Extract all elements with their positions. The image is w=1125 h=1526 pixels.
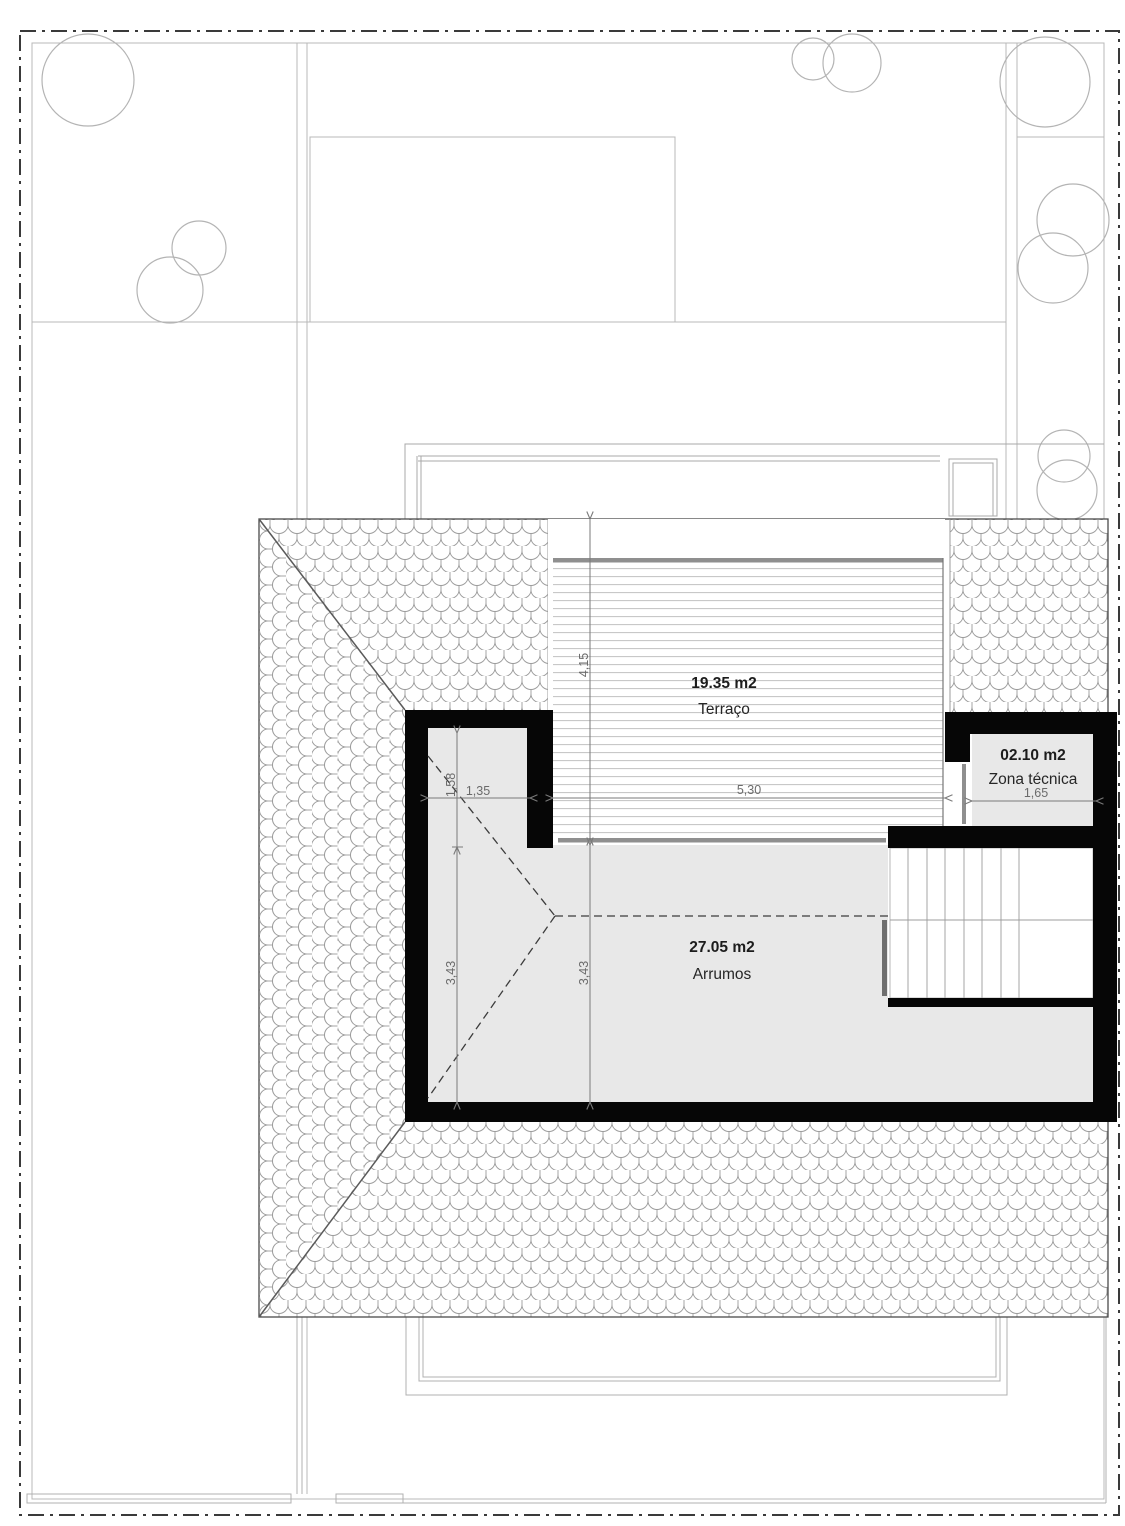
tree-icon — [1018, 233, 1088, 303]
dim-label-storage-depth-mid: 3,43 — [577, 961, 591, 985]
tree-icon — [1037, 460, 1097, 520]
dim-label-terrace-width: 5,30 — [737, 783, 761, 797]
door-leaf — [962, 764, 966, 824]
terrace-railing-top — [553, 558, 943, 563]
room-storage-right — [888, 1007, 1093, 1102]
floor-plan-page: 19.35 m2 Terraço 02.10 m2 Zona técnica 2… — [0, 0, 1125, 1526]
terrace-railing-bottom — [558, 838, 886, 843]
terrace-area-label: 19.35 m2 — [691, 675, 757, 692]
trees — [42, 34, 1109, 520]
roof-hatch-top-right — [950, 519, 1108, 712]
dim-label-technical-width: 1,65 — [1024, 786, 1048, 800]
tree-icon — [42, 34, 134, 126]
wall-right — [1093, 712, 1117, 1122]
wall-top-left — [405, 710, 553, 728]
storage-name-label: Arrumos — [693, 966, 752, 983]
dim-label-storage-upper-depth: 1,58 — [444, 773, 458, 797]
wall-left — [405, 710, 428, 1122]
wall-technical-top — [968, 712, 1117, 734]
wall-bottom — [405, 1102, 1117, 1122]
tree-icon — [1000, 37, 1090, 127]
wall-stairs-bottom — [888, 998, 1093, 1007]
lower-floor-outline-top — [405, 444, 1104, 519]
staircase — [882, 848, 1093, 998]
dim-label-storage-upper-width: 1,35 — [466, 784, 490, 798]
stair-well — [890, 848, 1093, 998]
stair-guard-rail — [882, 920, 887, 996]
tree-icon — [792, 38, 834, 80]
window-outline — [953, 463, 993, 516]
window-outline — [949, 459, 997, 516]
dim-label-storage-depth-left: 3,43 — [444, 961, 458, 985]
tree-icon — [1038, 430, 1090, 482]
tree-icon — [172, 221, 226, 275]
room-storage-main — [428, 845, 888, 1102]
technical-area-label: 02.10 m2 — [1000, 747, 1066, 764]
wall-inner-l — [527, 727, 553, 848]
floor-plan-drawing: 19.35 m2 Terraço 02.10 m2 Zona técnica 2… — [0, 0, 1125, 1526]
tree-icon — [137, 257, 203, 323]
dim-label-terrace-depth: 4,15 — [577, 653, 591, 677]
storage-area-label: 27.05 m2 — [689, 939, 755, 956]
tree-icon — [1037, 184, 1109, 256]
roof-hatch-bottom — [259, 1122, 1108, 1317]
terrace-name-label: Terraço — [698, 701, 750, 718]
wall-stairs-top — [888, 826, 1117, 848]
wall-terrace-divider — [945, 712, 970, 762]
lower-floor-outline-bottom — [27, 1317, 1106, 1503]
